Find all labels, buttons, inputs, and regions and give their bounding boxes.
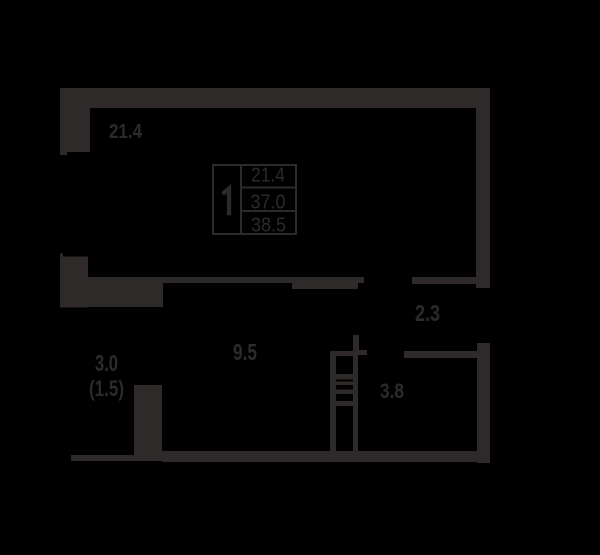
svg-text:21.4: 21.4	[251, 165, 285, 187]
svg-text:37.0: 37.0	[251, 192, 286, 214]
svg-text:2.3: 2.3	[415, 300, 440, 326]
svg-text:38.5: 38.5	[251, 215, 286, 237]
svg-text:3.8: 3.8	[380, 380, 404, 403]
svg-text:3.0: 3.0	[95, 350, 118, 376]
svg-text:(1.5): (1.5)	[89, 376, 124, 401]
svg-text:9.5: 9.5	[233, 339, 257, 365]
svg-text:21.4: 21.4	[109, 121, 143, 143]
